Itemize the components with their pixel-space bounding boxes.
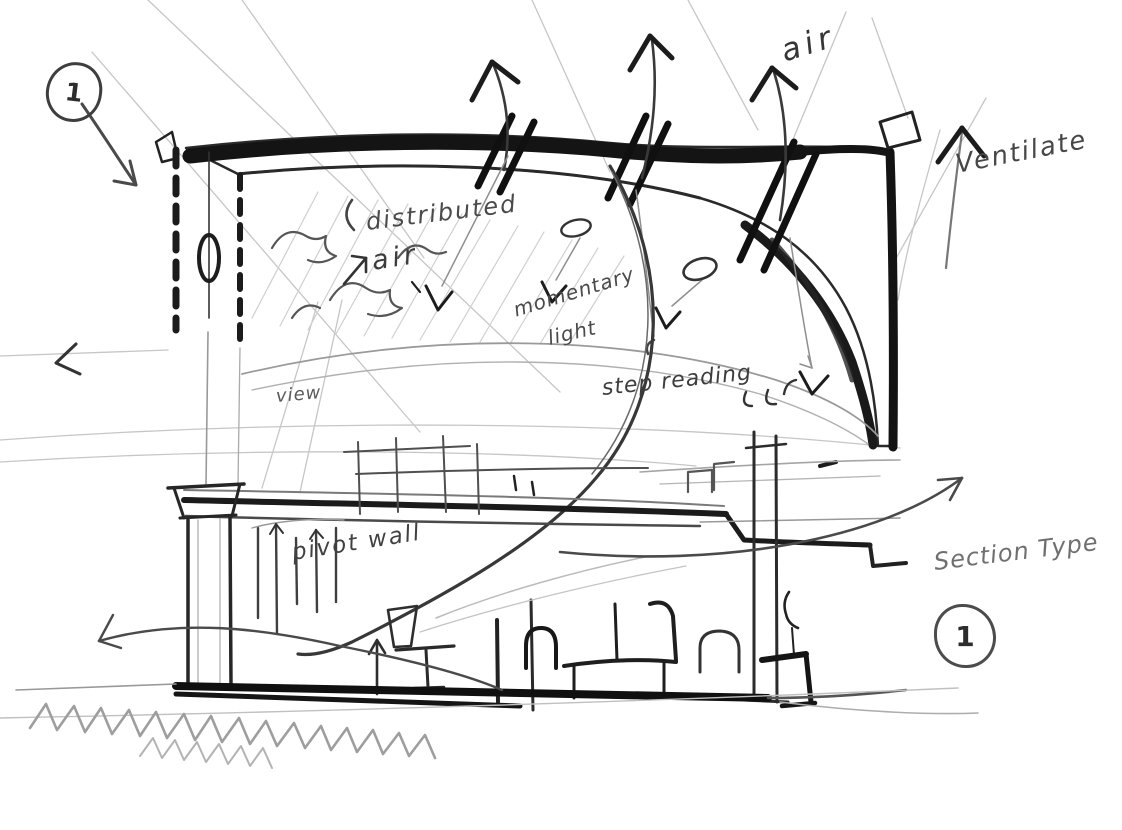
- sketch-canvas: air Ventilate distributed air momentary …: [0, 0, 1122, 830]
- small-arrow-icon: [344, 256, 366, 284]
- construction-lines: [0, 0, 986, 492]
- ceiling-arcs: [242, 343, 878, 444]
- right-arrow-icon: [560, 478, 962, 556]
- fixture-oval-icon: [681, 254, 720, 284]
- column-right: [700, 432, 815, 706]
- annotation-view: view: [275, 382, 322, 407]
- ground: [0, 684, 978, 718]
- bench: [700, 631, 739, 672]
- left-chevron-icon: [56, 344, 80, 374]
- ground-hatch: [30, 704, 435, 768]
- marker-number: 1: [955, 620, 974, 653]
- roof-vent-cap: [880, 112, 920, 148]
- up-arrow-icon: [369, 640, 385, 694]
- reading-lamp: [762, 592, 815, 706]
- sweep-curve: [298, 166, 653, 655]
- marker-number: 1: [64, 77, 85, 108]
- sketch-drawing: [0, 0, 1122, 830]
- beam-end: [836, 452, 896, 474]
- fixture-oval-icon: [560, 217, 593, 240]
- downlight-icon: [656, 308, 680, 328]
- left-wall-section: [156, 132, 244, 486]
- left-arrow-icon: [99, 615, 502, 690]
- detail-marker-bottom-right: 1: [934, 604, 996, 668]
- downlight-icon: [426, 286, 452, 310]
- column-left: [168, 484, 244, 686]
